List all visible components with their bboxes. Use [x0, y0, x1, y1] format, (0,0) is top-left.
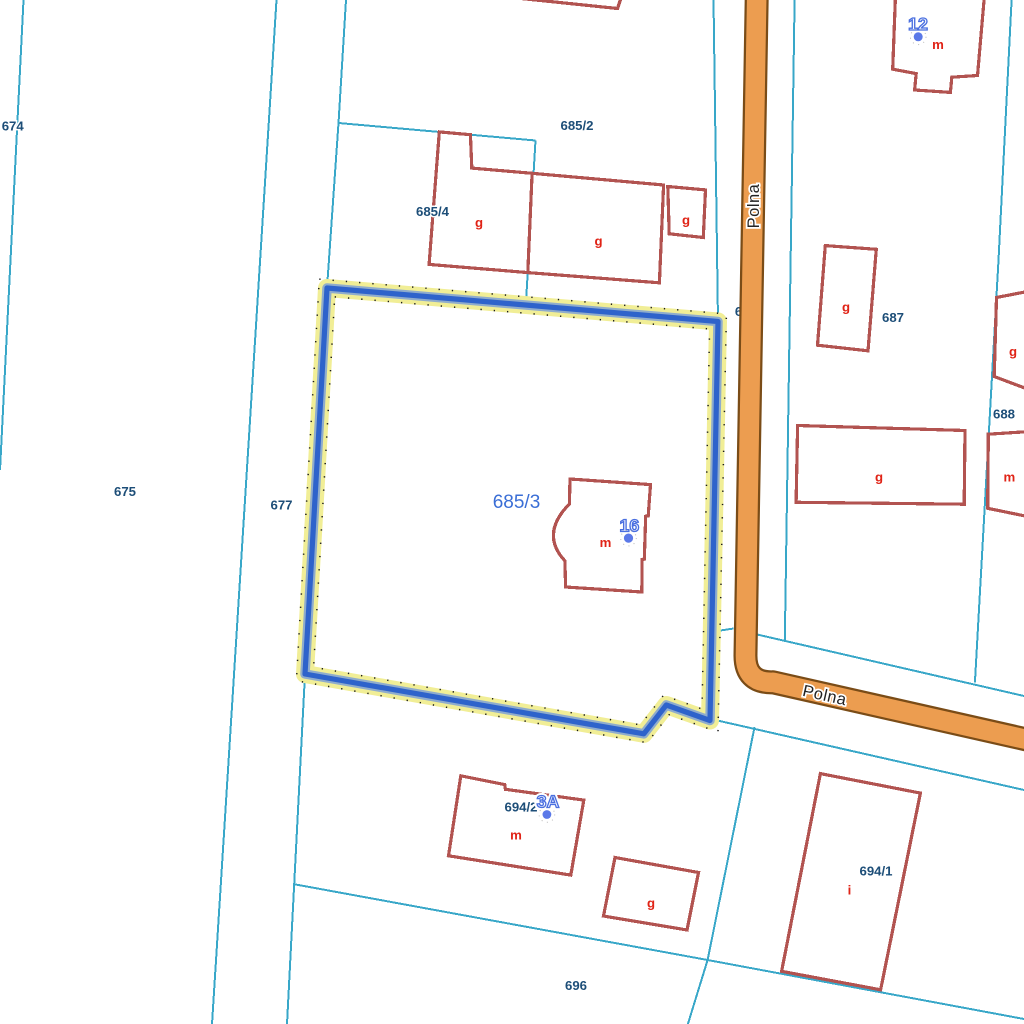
svg-text:3A: 3A: [537, 792, 560, 812]
svg-text:677: 677: [270, 498, 292, 513]
svg-text:g: g: [1009, 344, 1017, 359]
svg-text:685/2: 685/2: [560, 118, 593, 133]
svg-text:696: 696: [565, 978, 587, 993]
svg-text:m: m: [1004, 470, 1016, 485]
svg-text:g: g: [682, 213, 690, 228]
svg-text:m: m: [600, 535, 612, 550]
svg-text:674: 674: [2, 119, 25, 134]
svg-text:687: 687: [882, 310, 904, 325]
svg-text:694/1: 694/1: [859, 864, 892, 879]
svg-text:g: g: [594, 234, 602, 249]
svg-text:g: g: [875, 469, 883, 484]
svg-text:Polna: Polna: [745, 183, 763, 228]
svg-text:g: g: [475, 215, 483, 230]
svg-text:g: g: [842, 300, 850, 315]
svg-text:12: 12: [908, 14, 928, 34]
svg-text:m: m: [932, 37, 944, 52]
svg-text:688: 688: [993, 407, 1015, 422]
svg-text:i: i: [848, 883, 852, 898]
svg-text:g: g: [647, 896, 655, 911]
svg-text:m: m: [510, 828, 522, 843]
svg-text:675: 675: [114, 484, 136, 499]
svg-text:694/2: 694/2: [504, 800, 537, 815]
svg-text:685/3: 685/3: [493, 492, 541, 513]
svg-text:16: 16: [620, 515, 640, 535]
svg-text:685/4: 685/4: [416, 204, 450, 219]
